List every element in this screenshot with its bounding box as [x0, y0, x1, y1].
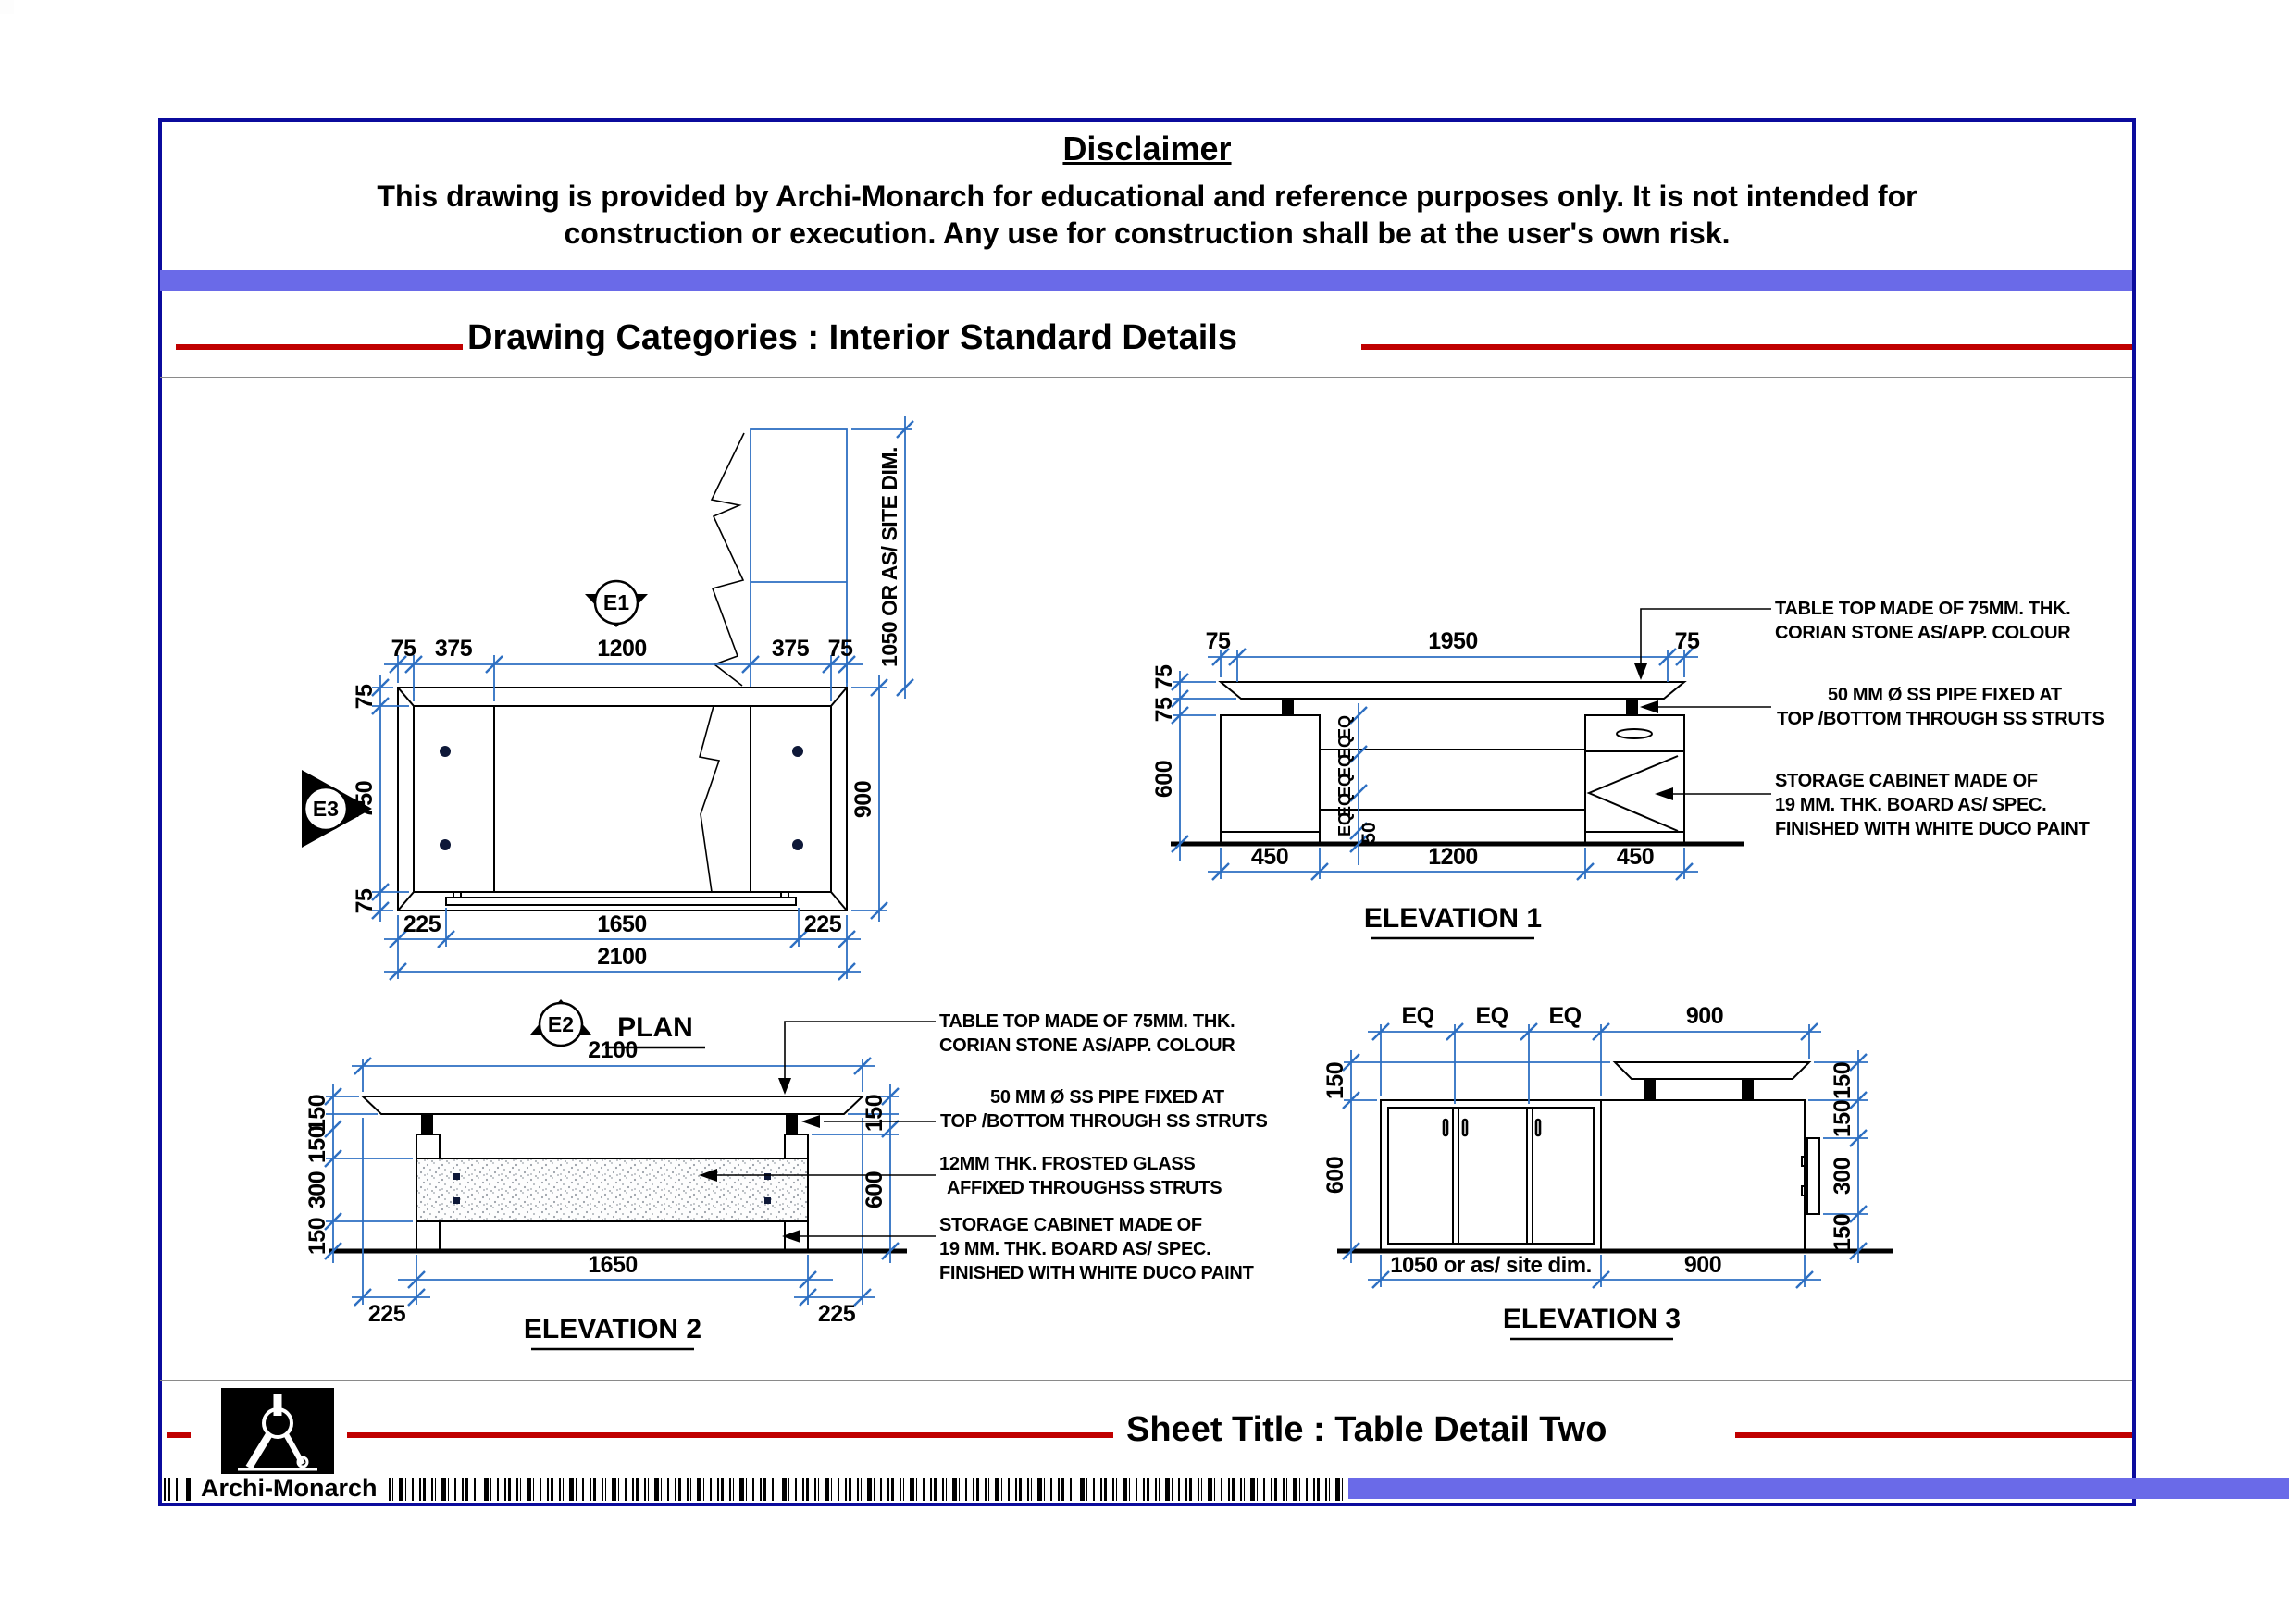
elevation-2-label: ELEVATION 2 — [524, 1314, 701, 1344]
frosted-glass-panel — [416, 1158, 808, 1221]
e2-note: TABLE TOP MADE OF 75MM. THK. — [939, 1011, 1235, 1032]
elevation-3-label: ELEVATION 3 — [1503, 1304, 1681, 1334]
elevation-2-view: 2100 150 150 300 150 150 600 1650 225 22… — [278, 999, 1231, 1388]
e2-dim: 150 — [304, 1218, 330, 1255]
e1-dim: 450 — [1617, 844, 1654, 870]
plan-dim: 75 — [828, 636, 853, 662]
e1-dim: 1200 — [1428, 844, 1478, 870]
e1-note: CORIAN STONE AS/APP. COLOUR — [1775, 623, 2071, 643]
e1-note: 50 MM Ø SS PIPE FIXED AT — [1828, 685, 2062, 705]
plan-view: 75 375 1200 375 75 75 750 75 225 1650 22… — [287, 398, 944, 1064]
sheet-title: Sheet Title : Table Detail Two — [1126, 1410, 1607, 1450]
e1-dim: 450 — [1251, 844, 1288, 870]
e1-dim: 75 — [1206, 628, 1231, 654]
sheet-red-line-mid — [347, 1432, 1113, 1438]
disclaimer-line-2: construction or execution. Any use for c… — [162, 217, 2132, 251]
e1-dim: 75 — [1675, 628, 1700, 654]
e3-dim: 1050 or as/ site dim. — [1390, 1253, 1592, 1278]
plan-dim: 75 — [391, 636, 416, 662]
e1-dim: 1950 — [1428, 628, 1478, 654]
elevation-1-view: 75 1950 75 75 75 600 EQ EQ EQ EQ EQ EQ 5… — [1092, 574, 2128, 981]
e2-dim: 600 — [862, 1171, 887, 1208]
disclaimer-line-1: This drawing is provided by Archi-Monarc… — [162, 180, 2132, 214]
e2-dim: 1650 — [588, 1252, 638, 1278]
marker-label: E3 — [313, 797, 339, 821]
e3-dim: EQ — [1548, 1003, 1581, 1029]
category-title: Drawing Categories : Interior Standard D… — [467, 318, 1237, 358]
plan-dim-total: 2100 — [597, 944, 647, 970]
marker-label: E1 — [603, 590, 629, 614]
barcode: Archi-Monarch — [164, 1478, 1347, 1501]
purple-bar-bottom — [1348, 1478, 2289, 1499]
e2-dim: 225 — [368, 1301, 406, 1327]
archi-monarch-logo — [221, 1388, 334, 1475]
e3-dim: 150 — [1830, 1100, 1855, 1137]
e2-note: TOP /BOTTOM THROUGH SS STRUTS — [940, 1111, 1268, 1132]
header-separator — [160, 377, 2132, 378]
sheet-red-dash-left — [167, 1432, 191, 1438]
e3-dim: 150 — [1322, 1062, 1348, 1099]
e3-dim: EQ — [1475, 1003, 1508, 1029]
e3-dim: 600 — [1322, 1157, 1348, 1194]
elevation-3-view: EQ EQ EQ 900 150 600 150 150 300 150 105… — [1296, 999, 1943, 1388]
e2-note: AFFIXED THROUGHSS STRUTS — [947, 1178, 1222, 1198]
category-red-line-right — [1361, 344, 2132, 350]
elevation-marker-e1: E1 — [585, 581, 648, 627]
brand-label: Archi-Monarch — [192, 1474, 387, 1503]
e2-dim: 225 — [818, 1301, 856, 1327]
e1-note: TABLE TOP MADE OF 75MM. THK. — [1775, 599, 2070, 619]
purple-divider-bar — [160, 270, 2132, 291]
category-red-line-left — [176, 344, 463, 350]
plan-dim: 225 — [804, 911, 842, 937]
e2-note: 50 MM Ø SS PIPE FIXED AT — [990, 1087, 1224, 1108]
plan-dim: 1200 — [597, 636, 647, 662]
e2-dim: 150 — [304, 1126, 330, 1163]
e1-note: STORAGE CABINET MADE OF — [1775, 771, 2038, 791]
plan-dim: 900 — [850, 781, 876, 818]
sheet-red-line-right — [1735, 1432, 2132, 1438]
e3-dim: 300 — [1830, 1158, 1855, 1195]
e3-dim: 900 — [1686, 1003, 1723, 1029]
plan-dim: 75 — [352, 888, 378, 913]
drawing-sheet: Disclaimer This drawing is provided by A… — [0, 0, 2296, 1623]
e3-dim: 150 — [1830, 1214, 1855, 1251]
e1-note: FINISHED WITH WHITE DUCO PAINT — [1775, 819, 2090, 839]
plan-dim: 375 — [435, 636, 473, 662]
plan-dim: 1650 — [597, 911, 647, 937]
compass-icon — [221, 1388, 334, 1475]
e2-note: 19 MM. THK. BOARD AS/ SPEC. — [939, 1239, 1210, 1259]
e1-dim: 75 — [1151, 697, 1177, 722]
e2-dim: 150 — [862, 1095, 887, 1132]
e1-dim: 600 — [1151, 761, 1177, 798]
corner-artifact — [0, 0, 14, 14]
e2-note: STORAGE CABINET MADE OF — [939, 1215, 1202, 1235]
e1-note: TOP /BOTTOM THROUGH SS STRUTS — [1777, 709, 2104, 729]
plan-dim: 375 — [772, 636, 810, 662]
e2-note: FINISHED WITH WHITE DUCO PAINT — [939, 1263, 1254, 1283]
e2-dim: 300 — [304, 1171, 330, 1208]
e1-dim: 75 — [1151, 664, 1177, 689]
e3-dim: 150 — [1830, 1062, 1855, 1099]
plan-dim: 225 — [403, 911, 441, 937]
e2-note: CORIAN STONE AS/APP. COLOUR — [939, 1035, 1235, 1056]
e3-dim: 900 — [1684, 1252, 1721, 1278]
e1-dim: 50 — [1359, 822, 1380, 843]
e1-note: 19 MM. THK. BOARD AS/ SPEC. — [1775, 795, 2046, 815]
e1-dim: EQ — [1335, 812, 1354, 836]
elevation-1-label: ELEVATION 1 — [1364, 903, 1542, 934]
plan-dim: 75 — [352, 684, 378, 709]
disclaimer-title: Disclaimer — [162, 130, 2132, 168]
e2-note: 12MM THK. FROSTED GLASS — [939, 1154, 1195, 1174]
plan-dim-site: 1050 OR AS/ SITE DIM. — [877, 447, 901, 667]
e3-dim: EQ — [1401, 1003, 1433, 1029]
e2-dim: 2100 — [588, 1037, 638, 1063]
